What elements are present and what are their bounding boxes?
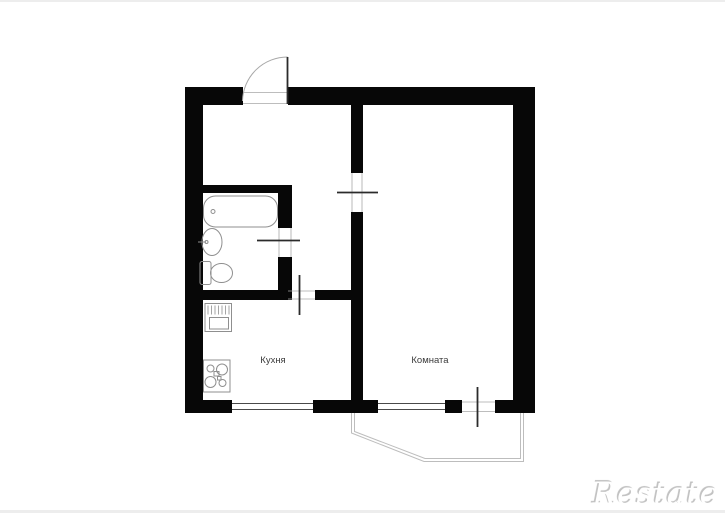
kitchen-window-icon: [232, 404, 313, 410]
kitchen-door-icon: [288, 275, 315, 315]
floor-plan-canvas: Кухня Комната Restate: [0, 0, 725, 513]
room-window-icon: [378, 404, 445, 410]
room-label-room: Комната: [395, 356, 465, 366]
entrance-door-icon: [243, 57, 289, 104]
kitchen-sink-icon: [205, 304, 232, 332]
stove-icon: [204, 360, 231, 392]
balcony-door-icon: [462, 387, 495, 427]
wash-basin-icon: [198, 229, 222, 256]
bathtub-icon: [204, 196, 278, 227]
room-label-kitchen: Кухня: [238, 356, 308, 366]
bathroom-door-icon: [257, 228, 300, 257]
balcony-outline: [352, 413, 524, 462]
toilet-icon: [200, 262, 233, 285]
watermark-logo: Restate: [593, 476, 719, 512]
plan-graphics: [0, 0, 725, 513]
hall-room-door-icon: [337, 173, 378, 212]
